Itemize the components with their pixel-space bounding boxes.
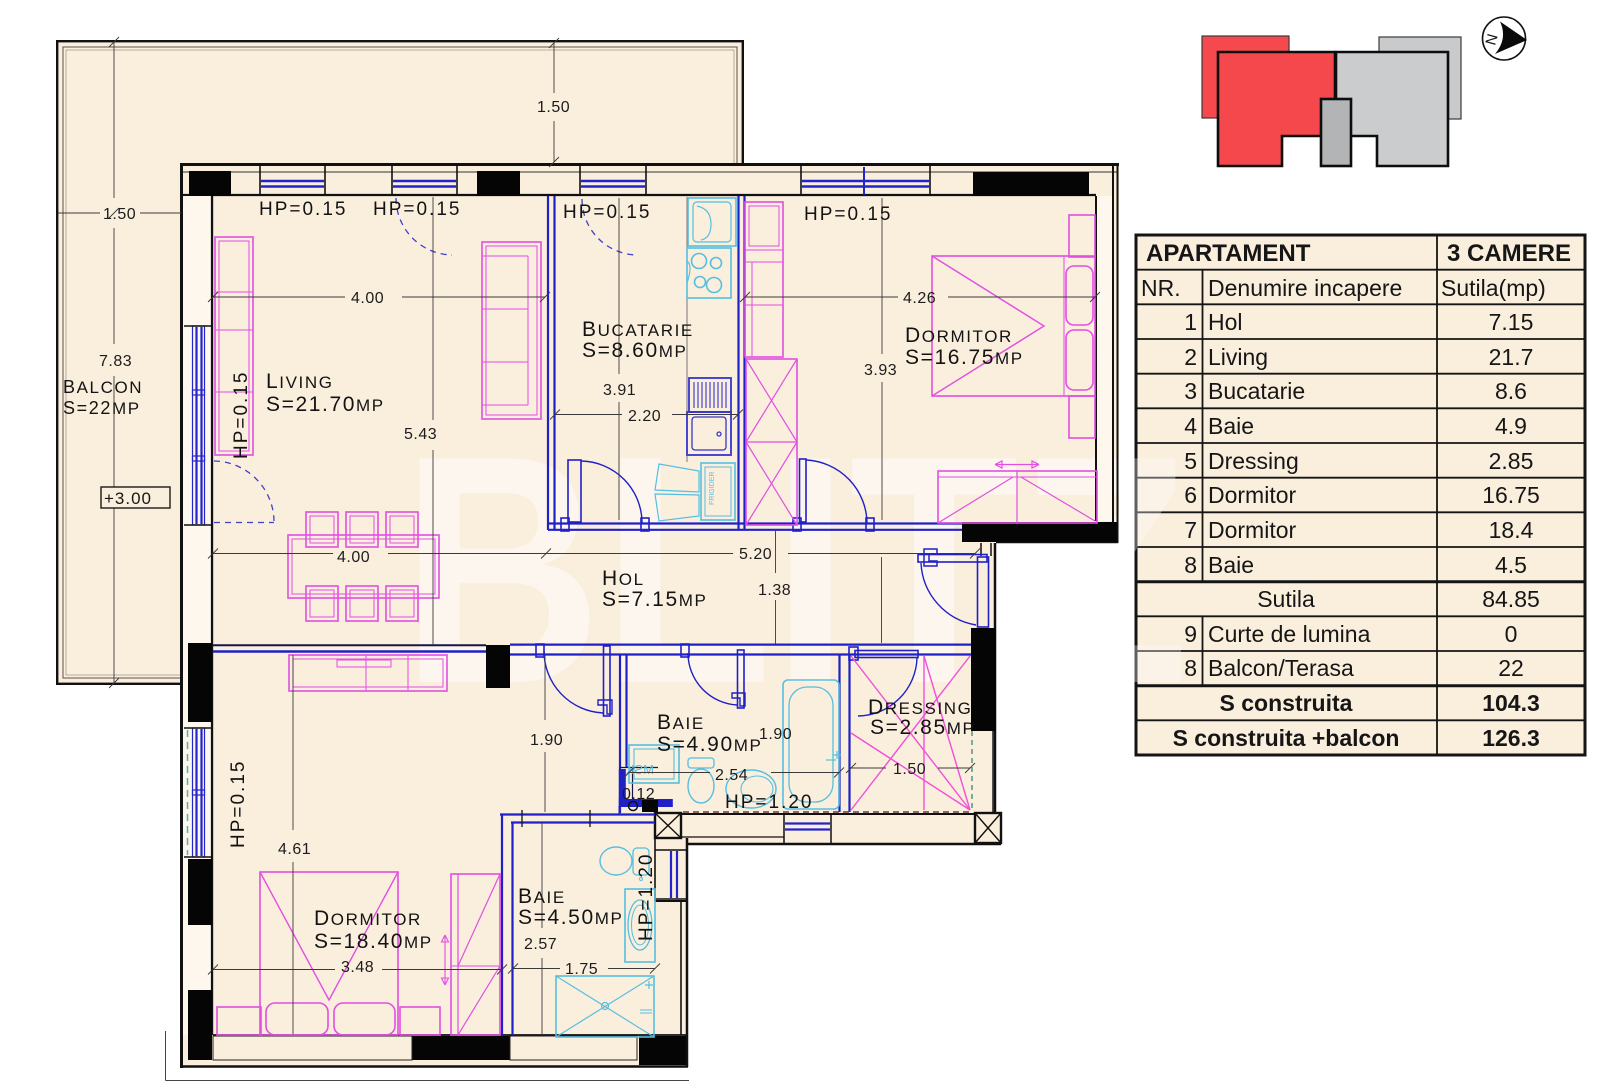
svg-text:LIVING: LIVING	[266, 370, 334, 393]
svg-text:Living: Living	[1208, 344, 1268, 370]
svg-text:3.93: 3.93	[864, 362, 897, 379]
svg-text:HP=0.15: HP=0.15	[231, 371, 252, 459]
svg-text:104.3: 104.3	[1482, 690, 1540, 716]
svg-text:16.75: 16.75	[1482, 482, 1540, 508]
svg-text:4.26: 4.26	[903, 290, 936, 307]
svg-text:+3.00: +3.00	[104, 489, 152, 508]
svg-text:Balcon/Terasa: Balcon/Terasa	[1208, 655, 1354, 681]
svg-text:HP=0.15: HP=0.15	[804, 204, 892, 225]
svg-text:5.43: 5.43	[404, 426, 437, 443]
svg-text:0: 0	[1505, 621, 1518, 647]
svg-text:BAIE: BAIE	[657, 711, 705, 734]
svg-text:S construita +balcon: S construita +balcon	[1173, 725, 1400, 751]
svg-text:7.15: 7.15	[1489, 309, 1534, 335]
svg-text:8.6: 8.6	[1495, 378, 1527, 404]
svg-text:Hol: Hol	[1208, 309, 1243, 335]
svg-text:4.9: 4.9	[1495, 413, 1527, 439]
svg-text:Sutila(mp): Sutila(mp)	[1441, 275, 1546, 301]
svg-text:Sutila: Sutila	[1257, 586, 1315, 612]
svg-text:HP=0.15: HP=0.15	[373, 199, 461, 220]
svg-text:1: 1	[1184, 309, 1197, 335]
svg-text:1.75: 1.75	[565, 961, 598, 978]
svg-text:2.85: 2.85	[1489, 448, 1534, 474]
svg-text:22: 22	[1498, 655, 1524, 681]
svg-text:1.50: 1.50	[537, 99, 570, 116]
svg-text:BUCATARIE: BUCATARIE	[582, 318, 694, 341]
svg-text:2.54: 2.54	[715, 767, 748, 784]
svg-text:S=22MP: S=22MP	[63, 398, 141, 418]
svg-text:2.20: 2.20	[628, 408, 661, 425]
svg-text:S=16.75MP: S=16.75MP	[905, 346, 1024, 369]
svg-text:FRIGIDER: FRIGIDER	[709, 472, 716, 505]
svg-text:1.90: 1.90	[759, 726, 792, 743]
svg-text:BALCON: BALCON	[63, 377, 143, 397]
svg-text:4.00: 4.00	[337, 549, 370, 566]
svg-text:1.50: 1.50	[103, 206, 136, 223]
svg-text:S=8.60MP: S=8.60MP	[582, 339, 687, 362]
svg-text:NR.: NR.	[1141, 275, 1181, 301]
svg-text:4.61: 4.61	[278, 841, 311, 858]
svg-text:Baie: Baie	[1208, 413, 1254, 439]
svg-text:0.12: 0.12	[622, 786, 655, 803]
svg-text:HP=0.15: HP=0.15	[259, 199, 347, 220]
svg-text:S construita: S construita	[1220, 690, 1353, 716]
svg-text:3 CAMERE: 3 CAMERE	[1447, 240, 1571, 267]
svg-text:HOL: HOL	[602, 567, 645, 590]
svg-text:5.20: 5.20	[739, 546, 772, 563]
svg-text:2.57: 2.57	[524, 936, 557, 953]
svg-text:3.91: 3.91	[603, 382, 636, 399]
svg-text:Curte de lumina: Curte de lumina	[1208, 621, 1371, 647]
svg-text:84.85: 84.85	[1482, 586, 1540, 612]
svg-text:1.38: 1.38	[758, 582, 791, 599]
svg-text:Dormitor: Dormitor	[1208, 517, 1297, 543]
svg-text:DORMITOR: DORMITOR	[905, 324, 1013, 347]
svg-text:APARTAMENT: APARTAMENT	[1146, 240, 1311, 267]
svg-text:S=4.90MP: S=4.90MP	[657, 733, 762, 756]
svg-text:7.83: 7.83	[99, 353, 132, 370]
svg-text:S=4.50MP: S=4.50MP	[518, 906, 623, 929]
svg-text:S=7.15MP: S=7.15MP	[602, 588, 707, 611]
svg-text:S=2.85MP: S=2.85MP	[870, 716, 975, 739]
svg-text:Dressing: Dressing	[1208, 448, 1299, 474]
svg-text:Bucatarie: Bucatarie	[1208, 378, 1305, 404]
svg-text:Denumire incapere: Denumire incapere	[1208, 275, 1402, 301]
svg-text:3.48: 3.48	[341, 959, 374, 976]
svg-text:DORMITOR: DORMITOR	[314, 907, 422, 930]
svg-text:4.00: 4.00	[351, 290, 384, 307]
svg-text:1.90: 1.90	[530, 732, 563, 749]
svg-text:HP=0.15: HP=0.15	[228, 760, 249, 848]
svg-text:S=21.70MP: S=21.70MP	[266, 393, 385, 416]
svg-text:HP=1.20: HP=1.20	[636, 853, 657, 941]
svg-text:S=18.40MP: S=18.40MP	[314, 930, 433, 953]
svg-text:1.50: 1.50	[893, 761, 926, 778]
svg-text:Dormitor: Dormitor	[1208, 482, 1297, 508]
svg-text:Baie: Baie	[1208, 552, 1254, 578]
svg-text:18.4: 18.4	[1489, 517, 1534, 543]
svg-text:BAIE: BAIE	[518, 885, 566, 908]
svg-text:21.7: 21.7	[1489, 344, 1534, 370]
svg-text:HP=0.15: HP=0.15	[563, 202, 651, 223]
svg-text:MSK: MSK	[626, 762, 655, 777]
svg-text:HP=1.20: HP=1.20	[725, 792, 813, 813]
svg-text:4.5: 4.5	[1495, 552, 1527, 578]
svg-text:126.3: 126.3	[1482, 725, 1540, 751]
svg-text:2: 2	[1184, 344, 1197, 370]
